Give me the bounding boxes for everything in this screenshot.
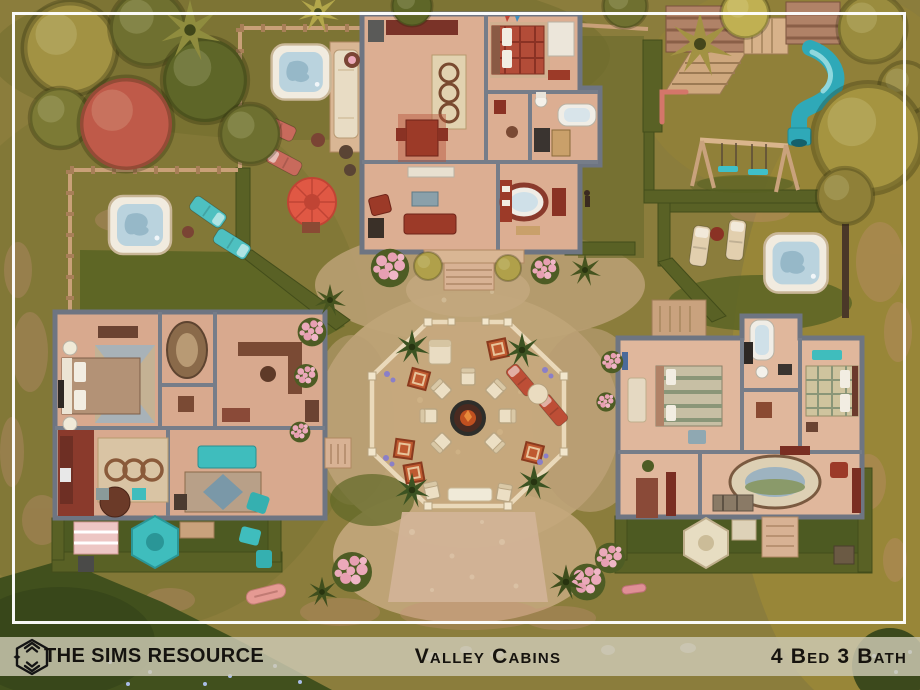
picnic-table <box>74 522 118 554</box>
fire-pit <box>452 402 484 434</box>
cream-armchair <box>429 340 451 364</box>
caption-bar: THE SIMS RESOURCE Valley Cabins 4 Bed 3 … <box>0 637 920 676</box>
patio-chair-2 <box>256 550 272 568</box>
closet-chair <box>178 396 194 412</box>
bedroom-plaid <box>490 16 574 80</box>
red-maple-tree <box>80 78 172 170</box>
top-cabin <box>330 14 600 290</box>
lot-title: Valley Cabins <box>415 645 561 668</box>
bed-bath-stats: 4 Bed 3 Bath <box>771 645 907 668</box>
floorplan-image <box>0 0 920 690</box>
screenshot-root: THE SIMS RESOURCE Valley Cabins 4 Bed 3 … <box>0 0 920 690</box>
back-steps <box>180 522 214 538</box>
storage-box <box>834 546 854 564</box>
closet-right-cabin <box>756 402 772 418</box>
patio-table <box>732 520 756 540</box>
garden-bench <box>448 488 492 501</box>
hot-tub-top <box>272 44 331 99</box>
grill <box>78 556 94 572</box>
hot-tub-right <box>764 233 827 292</box>
entry-hall <box>167 322 207 378</box>
gravel-path <box>388 512 548 602</box>
hot-tub-left <box>109 196 171 254</box>
brand-name: THE SIMS RESOURCE <box>44 645 264 668</box>
dark-fence <box>842 212 849 318</box>
